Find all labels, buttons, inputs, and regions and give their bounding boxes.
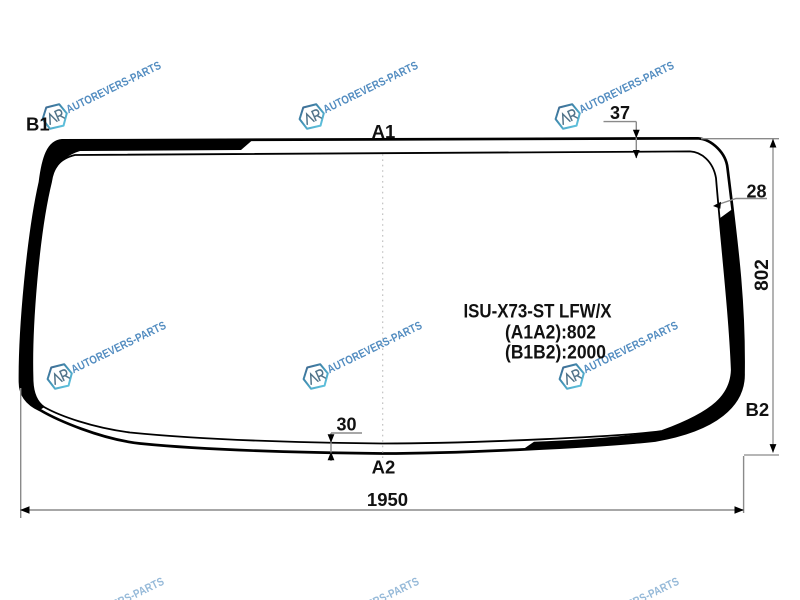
svg-text:28: 28 xyxy=(746,182,766,202)
svg-text:A1: A1 xyxy=(372,121,396,142)
svg-text:B1: B1 xyxy=(26,114,50,135)
svg-text:ISU-X73-ST LFW/X: ISU-X73-ST LFW/X xyxy=(464,302,612,323)
svg-text:37: 37 xyxy=(610,103,630,123)
svg-text:B2: B2 xyxy=(746,399,770,420)
svg-text:A2: A2 xyxy=(372,457,396,478)
svg-text:(B1B2):2000: (B1B2):2000 xyxy=(505,343,606,364)
svg-text:30: 30 xyxy=(336,415,356,435)
svg-text:(A1A2):802: (A1A2):802 xyxy=(505,323,596,344)
svg-text:1950: 1950 xyxy=(367,489,408,510)
svg-text:802: 802 xyxy=(752,259,773,291)
